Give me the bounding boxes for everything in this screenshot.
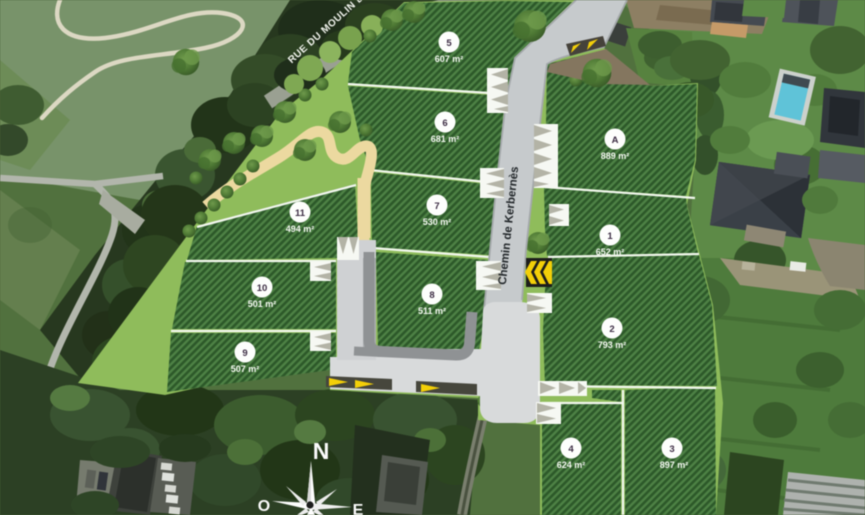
svg-text:607 m²: 607 m² xyxy=(435,54,464,64)
svg-text:501 m²: 501 m² xyxy=(248,299,277,309)
svg-text:11: 11 xyxy=(295,208,306,219)
svg-text:4: 4 xyxy=(568,444,574,455)
svg-text:O: O xyxy=(258,498,270,515)
svg-text:2: 2 xyxy=(609,324,614,335)
svg-text:N: N xyxy=(313,438,330,464)
svg-text:8: 8 xyxy=(429,290,434,301)
svg-text:5: 5 xyxy=(446,38,452,49)
svg-text:6: 6 xyxy=(442,118,447,129)
svg-text:507 m²: 507 m² xyxy=(231,364,260,374)
svg-text:E: E xyxy=(353,502,364,515)
svg-text:652 m²: 652 m² xyxy=(596,247,625,257)
svg-text:494 m²: 494 m² xyxy=(286,224,315,234)
svg-text:530 m²: 530 m² xyxy=(423,217,452,227)
svg-text:9: 9 xyxy=(242,348,247,359)
svg-text:10: 10 xyxy=(257,283,268,294)
svg-text:7: 7 xyxy=(434,201,439,212)
svg-text:1: 1 xyxy=(607,231,613,242)
svg-text:3: 3 xyxy=(669,444,674,455)
svg-text:897 m²: 897 m² xyxy=(660,460,689,470)
svg-text:511 m²: 511 m² xyxy=(418,306,446,316)
svg-text:681 m²: 681 m² xyxy=(431,134,460,144)
svg-text:793 m²: 793 m² xyxy=(598,340,627,350)
svg-text:A: A xyxy=(612,135,619,146)
svg-text:889 m²: 889 m² xyxy=(601,151,630,161)
svg-text:624 m²: 624 m² xyxy=(557,460,586,470)
